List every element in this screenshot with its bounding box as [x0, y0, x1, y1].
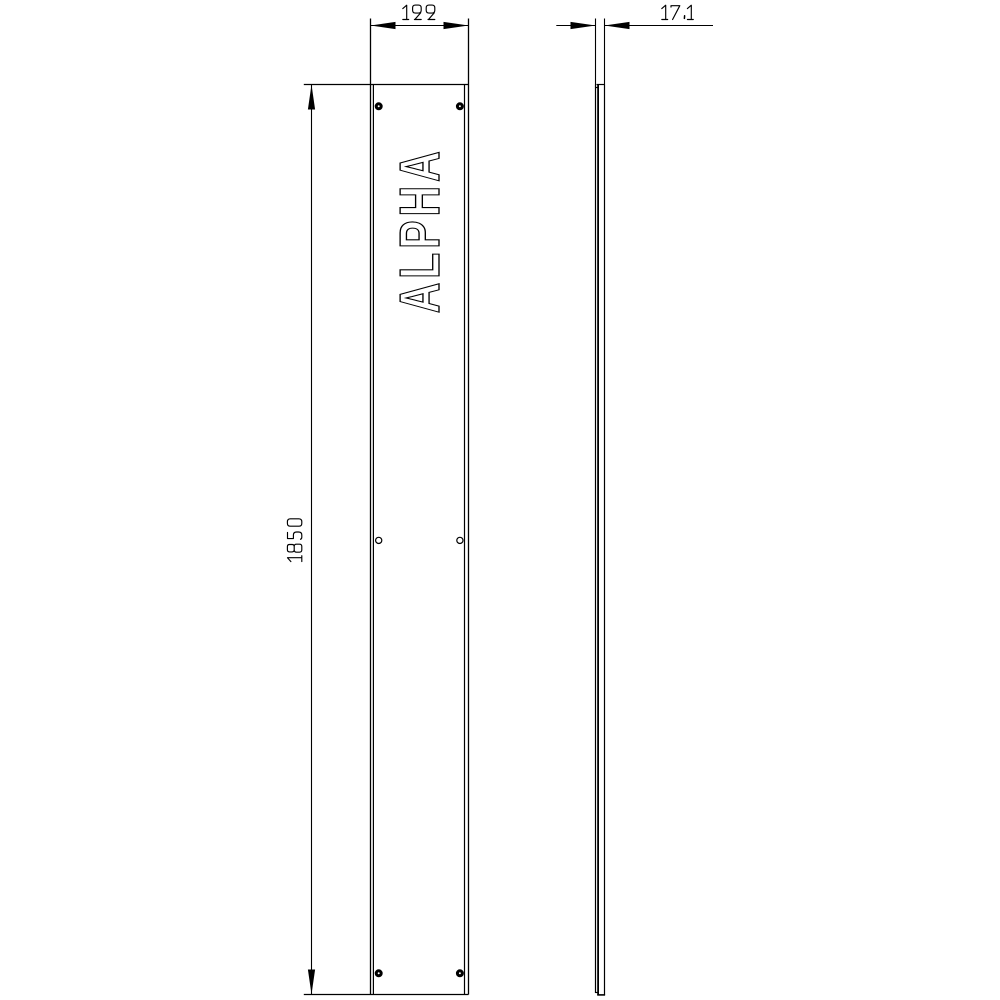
svg-text:ALPHA: ALPHA — [388, 151, 451, 313]
